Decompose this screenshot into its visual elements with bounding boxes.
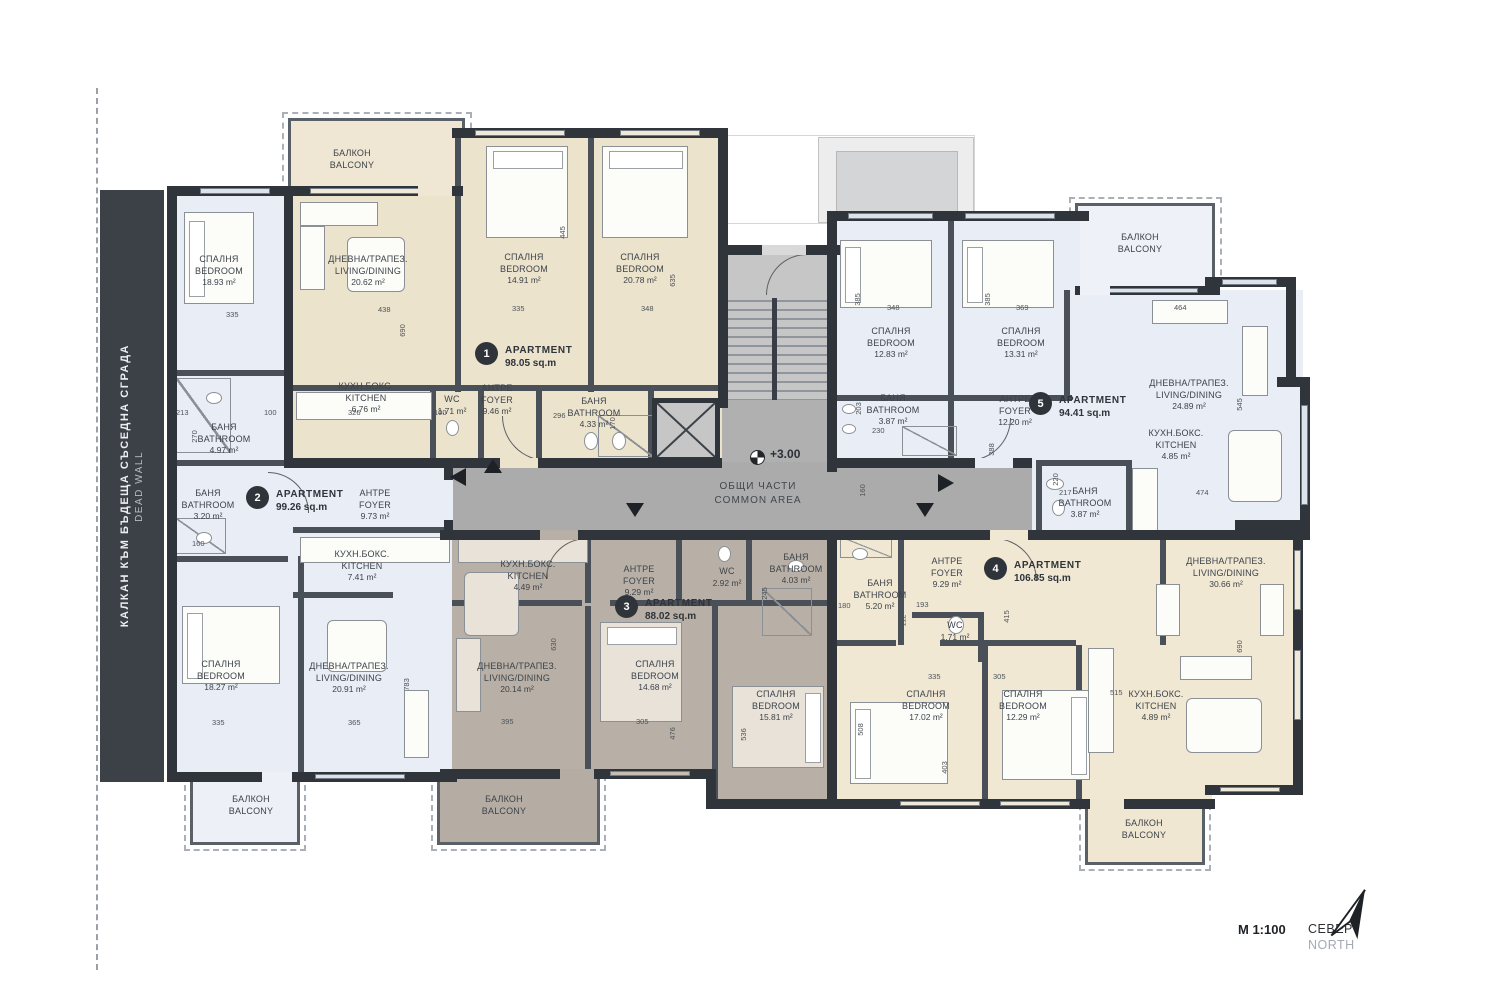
dimension-label: 690 xyxy=(1235,640,1244,653)
dimension-label: 348 xyxy=(887,303,900,312)
room-label-living-dining: ДНЕВНА/ТРАПЕЗ.LIVING/DINING20.91 m² xyxy=(309,661,388,695)
shower xyxy=(762,588,812,636)
partition xyxy=(912,612,982,618)
room-label-bedroom: СПАЛНЯBEDROOM17.02 m² xyxy=(902,689,950,723)
dimension-label: 415 xyxy=(1002,610,1011,623)
property-line xyxy=(96,88,98,970)
stair-rail xyxy=(772,298,777,400)
balcony-label: БАЛКОНBALCONY xyxy=(1118,232,1162,255)
balcony-door xyxy=(560,769,594,779)
dimension-label: 385 xyxy=(853,293,862,306)
room-label-bedroom: СПАЛНЯBEDROOM13.31 m² xyxy=(997,326,1045,360)
dimension-label: 160 xyxy=(858,484,867,497)
canopy-outline xyxy=(836,151,958,217)
dimension-label: 445 xyxy=(558,226,567,239)
partition xyxy=(455,137,461,392)
wall xyxy=(718,128,728,408)
door-opening xyxy=(975,458,1013,468)
room-label-wc: WC2.92 m² xyxy=(713,566,742,588)
window xyxy=(620,130,700,136)
room-label-wc: WC1.71 m² xyxy=(941,620,970,642)
room-label-bedroom: СПАЛНЯBEDROOM12.29 m² xyxy=(999,689,1047,723)
room-label-foyer: АНТРЕFOYER12.20 m² xyxy=(998,394,1032,428)
apartment-3-label: APARTMENT88.02 sq.m xyxy=(645,597,712,623)
dimension-label: 635 xyxy=(668,274,677,287)
room-label-living-dining: ДНЕВНА/ТРАПЕЗ.LIVING/DINING30.66 m² xyxy=(1186,556,1265,590)
sofa xyxy=(300,226,325,290)
partition xyxy=(1036,460,1132,466)
room-label-bathroom: БАНЯBATHROOM4.03 m² xyxy=(770,552,823,586)
dining-table xyxy=(1228,430,1282,502)
dimension-label: 476 xyxy=(668,727,677,740)
floor-plan: КАЛКАН КЪМ БЪДЕЩА СЪСЕДНА СГРАДА DEAD WA… xyxy=(0,0,1500,984)
bed xyxy=(962,240,1054,308)
room-label-wc: WC1.71 m² xyxy=(438,394,467,416)
balcony-door xyxy=(262,772,292,782)
direction-arrow-icon xyxy=(450,468,466,486)
balcony-label: БАЛКОНBALCONY xyxy=(1122,818,1166,841)
window xyxy=(1220,787,1280,792)
window xyxy=(1294,650,1301,720)
partition xyxy=(978,612,984,662)
sofa xyxy=(1242,326,1268,396)
room-label-living-dining: ДНЕВНА/ТРАПЕЗ.LIVING/DINING20.62 m² xyxy=(328,254,407,288)
direction-arrow-icon xyxy=(626,503,644,517)
direction-arrow-icon xyxy=(916,503,934,517)
door-opening xyxy=(540,530,578,540)
toilet xyxy=(584,432,598,450)
room-label-living-dining: ДНЕВНА/ТРАПЕЗ.LIVING/DINING20.14 m² xyxy=(477,661,556,695)
dimension-label: 403 xyxy=(940,761,949,774)
dimension-label: 213 xyxy=(176,408,189,417)
dimension-label: 305 xyxy=(636,717,649,726)
window xyxy=(965,213,1055,219)
window xyxy=(315,774,405,779)
dimension-label: 203 xyxy=(854,402,863,415)
shower xyxy=(902,426,957,456)
apartment-5-label: APARTMENT94.41 sq.m xyxy=(1059,394,1126,420)
sofa xyxy=(1156,584,1180,636)
dimension-label: 193 xyxy=(916,600,929,609)
window xyxy=(1301,405,1308,505)
window xyxy=(900,801,980,806)
room-label-bedroom: СПАЛНЯBEDROOM18.93 m² xyxy=(195,254,243,288)
level-mark-icon xyxy=(750,450,765,465)
window xyxy=(475,130,565,136)
sink xyxy=(852,548,868,560)
dimension-label: 515 xyxy=(1110,688,1123,697)
level-mark: +3.00 xyxy=(770,447,800,461)
partition xyxy=(948,215,954,401)
room-label-bathroom: БАНЯBATHROOM3.87 m² xyxy=(867,393,920,427)
partition xyxy=(173,460,288,466)
scale-label: М 1:100 xyxy=(1238,922,1286,937)
room-label-foyer: АНТРЕFOYER9.29 m² xyxy=(931,556,963,590)
balcony-door xyxy=(418,186,452,196)
dimension-label: 536 xyxy=(739,728,748,741)
dimension-label: 335 xyxy=(928,672,941,681)
wall xyxy=(284,186,293,468)
room-label-foyer: АНТРЕFOYER9.73 m² xyxy=(359,488,391,522)
room-label-bedroom: СПАЛНЯBEDROOM14.68 m² xyxy=(631,659,679,693)
dimension-label: 630 xyxy=(549,638,558,651)
partition xyxy=(173,370,288,376)
dead-wall-label-en: DEAD WALL xyxy=(134,451,145,522)
room-label-bedroom: СПАЛНЯBEDROOM14.91 m² xyxy=(500,252,548,286)
balcony-door xyxy=(1080,286,1110,295)
balcony xyxy=(288,118,465,192)
door-opening xyxy=(444,480,453,520)
partition xyxy=(298,556,304,775)
apartment-3-badge: 3 xyxy=(615,595,638,618)
dimension-label: 508 xyxy=(856,723,865,736)
dimension-label: 296 xyxy=(553,411,566,420)
north-compass-icon xyxy=(1322,886,1378,944)
wall xyxy=(1286,277,1296,387)
balcony-label: БАЛКОНBALCONY xyxy=(482,794,526,817)
wall xyxy=(167,186,177,782)
balcony-label: БАЛКОНBALCONY xyxy=(229,794,273,817)
balcony-door xyxy=(1090,799,1124,809)
apartment-2-badge: 2 xyxy=(246,486,269,509)
dimension-label: 100 xyxy=(264,408,277,417)
dimension-label: 335 xyxy=(212,718,225,727)
room-label-kitchen: КУХН.БОКС.KITCHEN4.85 m² xyxy=(1148,428,1203,462)
room-label-bathroom: БАНЯBATHROOM3.20 m² xyxy=(182,488,235,522)
dimension-label: 385 xyxy=(983,293,992,306)
dimension-label: 335 xyxy=(226,310,239,319)
room-label-kitchen: КУХН.БОКС.KITCHEN6.76 m² xyxy=(338,381,393,415)
partition xyxy=(588,137,594,392)
direction-arrow-icon xyxy=(938,474,954,492)
partition xyxy=(676,535,682,603)
partition xyxy=(293,592,393,598)
partition xyxy=(585,606,591,775)
window xyxy=(1000,801,1070,806)
bed xyxy=(486,146,568,238)
room-label-bedroom: СПАЛНЯBEDROOM12.83 m² xyxy=(867,326,915,360)
sink xyxy=(612,432,626,450)
room-label-foyer: АНТРЕFOYER9.46 m² xyxy=(481,383,513,417)
dead-wall: КАЛКАН КЪМ БЪДЕЩА СЪСЕДНА СГРАДА DEAD WA… xyxy=(100,190,164,782)
room-label-kitchen: КУХН.БОКС.KITCHEN4.49 m² xyxy=(500,559,555,593)
elevator xyxy=(652,398,720,462)
room-label-foyer: АНТРЕFOYER9.29 m² xyxy=(623,564,655,598)
partition xyxy=(982,645,988,805)
dimension-label: 690 xyxy=(398,324,407,337)
room-label-kitchen: КУХН.БОКС.KITCHEN7.41 m² xyxy=(334,549,389,583)
apartment-4-badge: 4 xyxy=(984,557,1007,580)
sofa xyxy=(404,690,429,758)
window xyxy=(610,771,690,776)
room-label-living-dining: ДНЕВНА/ТРАПЕЗ.LIVING/DINING24.89 m² xyxy=(1149,378,1228,412)
wall xyxy=(827,211,837,472)
dimension-label: 230 xyxy=(872,426,885,435)
elevator-x-icon xyxy=(657,403,715,457)
dimension-label: 190 xyxy=(1035,462,1044,475)
sink xyxy=(842,424,856,434)
dimension-label: 220 xyxy=(1051,473,1060,486)
dimension-label: 245 xyxy=(760,587,769,600)
common-area-label: ОБЩИ ЧАСТИ COMMON AREA xyxy=(714,480,801,508)
kitchen-counter xyxy=(1132,468,1158,532)
dimension-label: 783 xyxy=(402,678,411,691)
bed xyxy=(602,146,688,238)
partition xyxy=(293,527,453,533)
room-label-bathroom: БАНЯBATHROOM4.33 m² xyxy=(568,396,621,430)
window xyxy=(1294,550,1301,610)
sofa xyxy=(1152,300,1228,324)
dimension-label: 335 xyxy=(512,304,525,313)
apartment-1-label: APARTMENT98.05 sq.m xyxy=(505,344,572,370)
dead-wall-label-bg: КАЛКАН КЪМ БЪДЕЩА СЪСЕДНА СГРАДА xyxy=(119,344,131,627)
dining-table xyxy=(1186,698,1262,753)
dimension-label: 365 xyxy=(348,718,361,727)
apartment-2-label: APARTMENT99.26 sq.m xyxy=(276,488,343,514)
door-opening xyxy=(500,458,538,468)
partition xyxy=(173,556,288,562)
room-label-bathroom: БАНЯBATHROOM4.97 m² xyxy=(198,422,251,456)
wall xyxy=(706,799,837,809)
partition xyxy=(1064,290,1070,401)
dimension-label: 160 xyxy=(192,539,205,548)
door-opening xyxy=(990,530,1028,540)
window xyxy=(848,213,933,219)
apartment-1-badge: 1 xyxy=(475,342,498,365)
direction-arrow-icon xyxy=(484,459,502,473)
apartment-4-label: APARTMENT106.85 sq.m xyxy=(1014,559,1081,585)
sofa xyxy=(1180,656,1252,680)
dimension-label: 112 xyxy=(898,615,907,627)
room-label-bedroom: СПАЛНЯBEDROOM20.78 m² xyxy=(616,252,664,286)
window xyxy=(1222,279,1277,285)
dimension-label: 545 xyxy=(1235,398,1244,411)
dimension-label: 438 xyxy=(378,305,391,314)
window xyxy=(200,188,270,194)
room-label-bedroom: СПАЛНЯBEDROOM15.81 m² xyxy=(752,689,800,723)
sink xyxy=(206,392,222,404)
toilet xyxy=(718,546,731,562)
dimension-label: 388 xyxy=(987,443,996,456)
dimension-label: 369 xyxy=(1016,303,1029,312)
partition xyxy=(836,640,896,646)
dimension-label: 464 xyxy=(1174,303,1187,312)
kitchen-counter xyxy=(1088,648,1114,753)
room-label-bathroom: БАНЯBATHROOM3.87 m² xyxy=(1059,486,1112,520)
room-label-bedroom: СПАЛНЯBEDROOM18.27 m² xyxy=(197,659,245,693)
wall xyxy=(827,530,837,809)
dimension-label: 305 xyxy=(993,672,1006,681)
toilet xyxy=(446,420,459,436)
room-label-bathroom: БАНЯBATHROOM5.20 m² xyxy=(854,578,907,612)
dimension-label: 474 xyxy=(1196,488,1209,497)
dimension-label: 395 xyxy=(501,717,514,726)
balcony-label: БАЛКОНBALCONY xyxy=(330,148,374,171)
apartment-5-badge: 5 xyxy=(1029,392,1052,415)
dimension-label: 180 xyxy=(838,601,851,610)
sofa xyxy=(1260,584,1284,636)
sofa xyxy=(300,202,378,226)
room-label-kitchen: КУХН.БОКС.KITCHEN4.89 m² xyxy=(1128,689,1183,723)
wall xyxy=(167,772,457,782)
partition xyxy=(746,535,752,603)
entrance-opening xyxy=(762,245,806,255)
dimension-label: 348 xyxy=(641,304,654,313)
